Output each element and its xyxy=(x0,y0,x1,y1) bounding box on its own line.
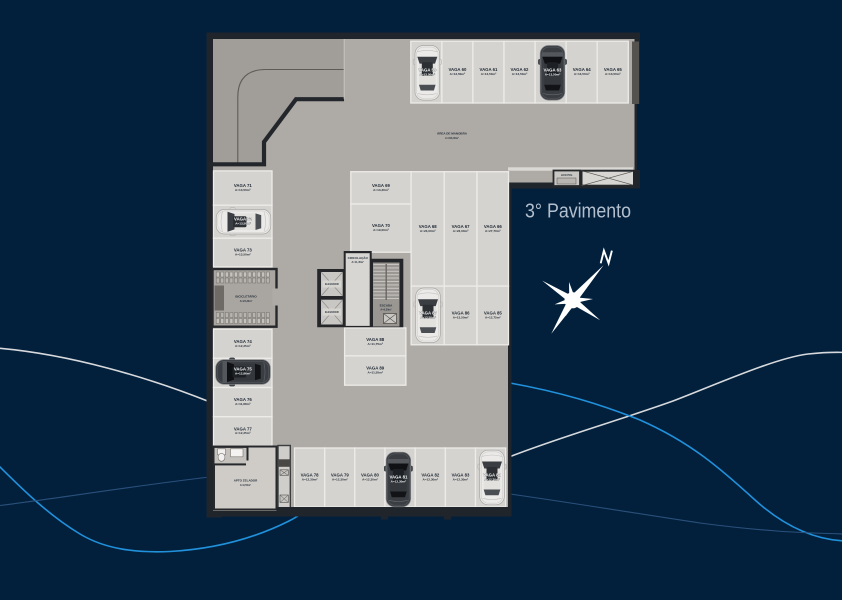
svg-text:A=13,50m²: A=13,50m² xyxy=(235,253,251,257)
svg-text:APTO ZELADOR: APTO ZELADOR xyxy=(234,479,258,483)
svg-text:A=12,25m²: A=12,25m² xyxy=(235,431,251,435)
svg-text:A=12,30m²: A=12,30m² xyxy=(302,478,318,482)
svg-text:A=13,50m²: A=13,50m² xyxy=(235,188,251,192)
svg-text:A=12,30m²: A=12,30m² xyxy=(484,478,500,482)
svg-text:A=12,30m²: A=12,30m² xyxy=(391,480,407,484)
svg-text:A=13,50m²: A=13,50m² xyxy=(453,316,469,320)
svg-text:A=11,55m²: A=11,55m² xyxy=(367,371,382,375)
svg-text:CIRCULAÇÃO: CIRCULAÇÃO xyxy=(348,255,369,260)
svg-text:BICICLETÁRIO: BICICLETÁRIO xyxy=(235,294,257,299)
svg-text:A=12,25m²: A=12,25m² xyxy=(235,344,251,348)
svg-text:A=12,86m²: A=12,86m² xyxy=(235,372,251,376)
svg-text:A=316,00m²: A=316,00m² xyxy=(445,136,459,140)
svg-text:A=12,30m²: A=12,30m² xyxy=(362,478,378,482)
svg-text:A=13,50m²: A=13,50m² xyxy=(481,72,497,76)
svg-text:ESCADA: ESCADA xyxy=(380,304,394,308)
svg-text:A=13,50m²: A=13,50m² xyxy=(420,73,436,77)
svg-text:A=23,00m²: A=23,00m² xyxy=(420,229,436,233)
svg-text:A=12,30m²: A=12,30m² xyxy=(453,478,469,482)
svg-text:A=13,50m²: A=13,50m² xyxy=(235,221,251,225)
svg-text:ELEVADOR: ELEVADOR xyxy=(325,311,339,314)
svg-text:A=27,70m²: A=27,70m² xyxy=(485,229,501,233)
svg-text:A=11,88m²: A=11,88m² xyxy=(235,402,250,406)
svg-text:LIXO PAV.: LIXO PAV. xyxy=(561,174,573,177)
svg-text:A=13,50m²: A=13,50m² xyxy=(512,72,528,76)
svg-text:A=23,30m²: A=23,30m² xyxy=(240,299,253,303)
svg-text:A=23,00m²: A=23,00m² xyxy=(453,229,469,233)
svg-text:A=13,50m²: A=13,50m² xyxy=(450,72,466,76)
svg-text:A=11,45m²: A=11,45m² xyxy=(351,260,364,264)
svg-text:ELEVADOR: ELEVADOR xyxy=(325,283,339,286)
svg-text:3° Pavimento: 3° Pavimento xyxy=(525,200,631,223)
svg-text:A=12,30m²: A=12,30m² xyxy=(332,478,348,482)
svg-text:A=13,50m²: A=13,50m² xyxy=(574,72,590,76)
svg-text:A=13,50m²: A=13,50m² xyxy=(420,316,436,320)
svg-text:A=9,30m²: A=9,30m² xyxy=(380,308,391,312)
svg-text:A=19,00m²: A=19,00m² xyxy=(373,228,389,232)
svg-text:A=13,50m²: A=13,50m² xyxy=(545,73,561,77)
svg-text:A=13,30m²: A=13,30m² xyxy=(373,188,389,192)
svg-text:ÁREA DE MANOBRA: ÁREA DE MANOBRA xyxy=(437,131,468,136)
svg-text:A=11,75m²: A=11,75m² xyxy=(367,342,382,346)
svg-text:A=9,50m²: A=9,50m² xyxy=(240,483,251,487)
svg-text:A=12,75m²: A=12,75m² xyxy=(485,316,501,320)
svg-text:A=13,50m²: A=13,50m² xyxy=(605,72,621,76)
svg-text:A=12,30m²: A=12,30m² xyxy=(423,478,439,482)
